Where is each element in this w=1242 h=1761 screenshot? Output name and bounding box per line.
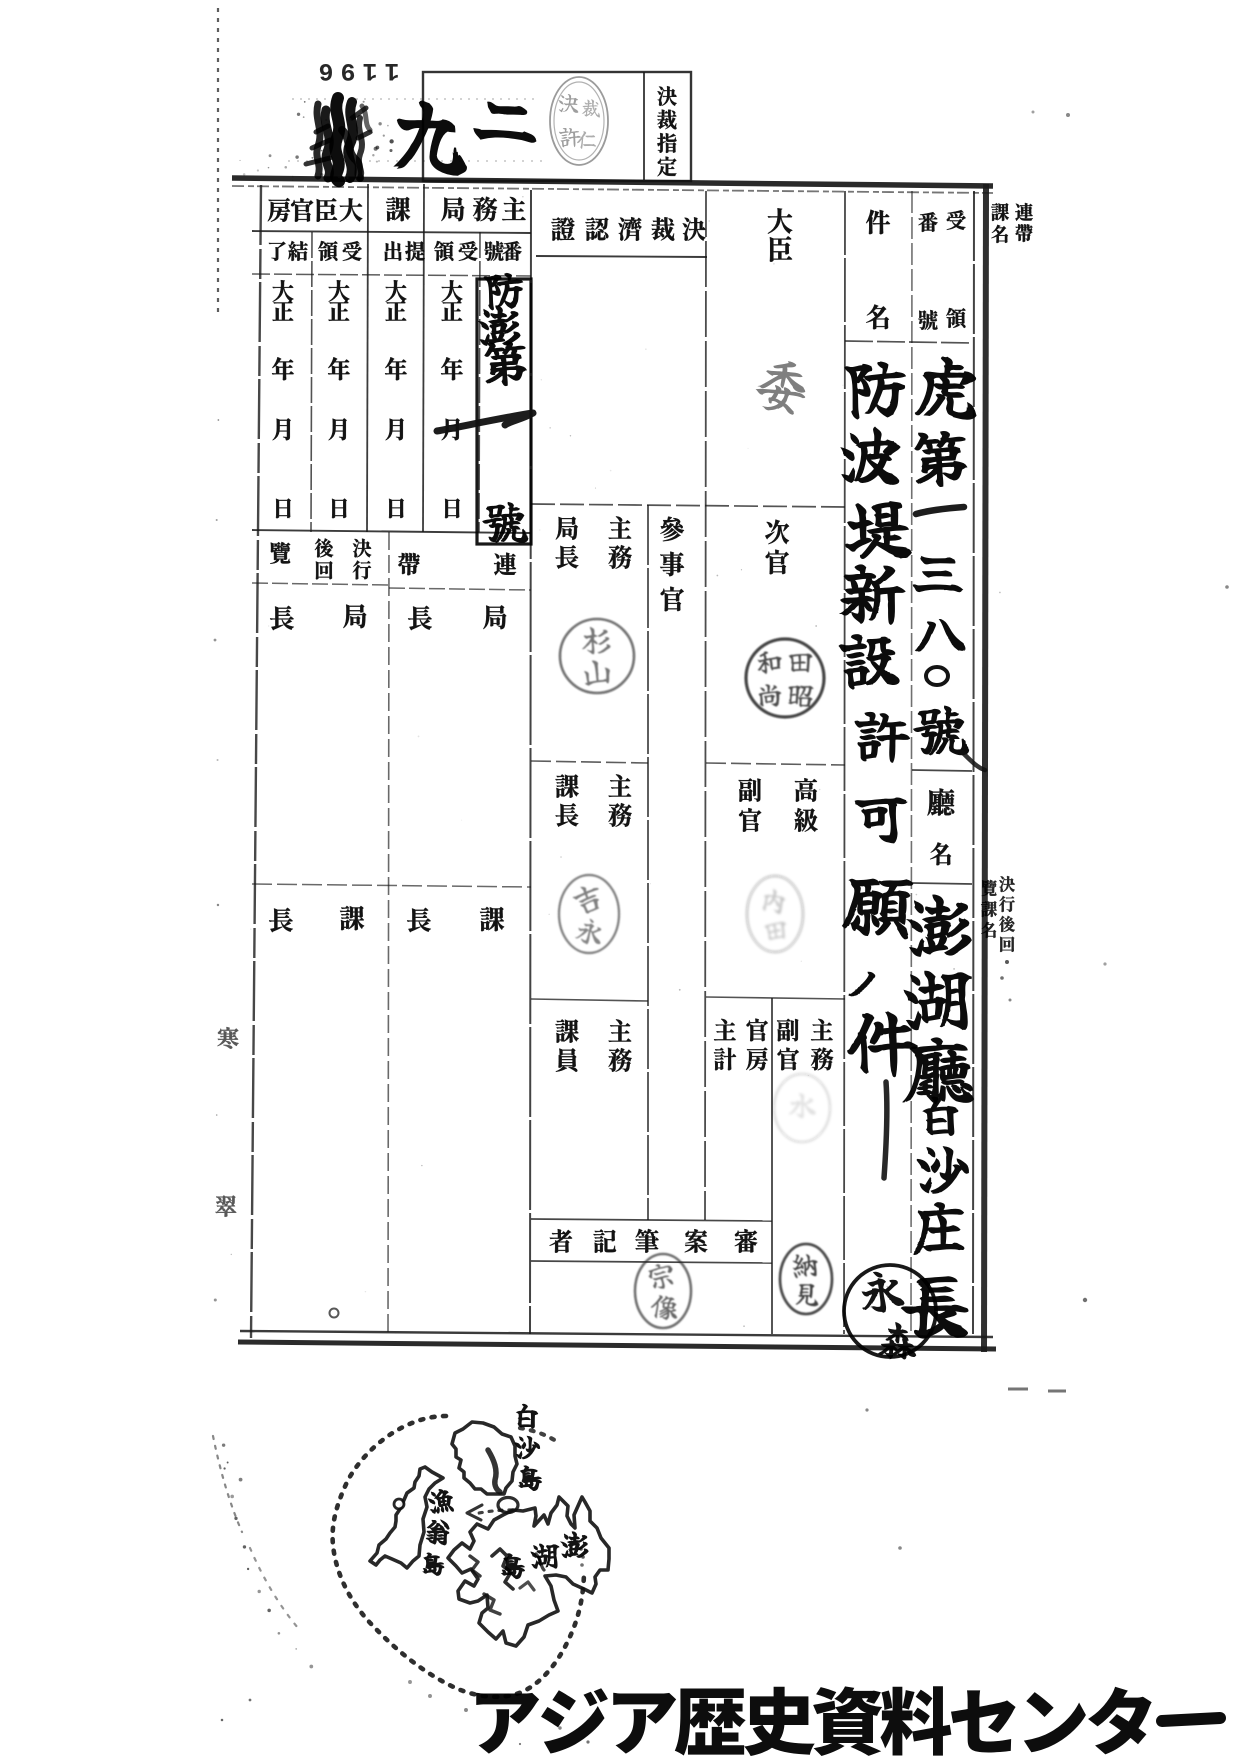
svg-text:1: 1: [362, 56, 377, 85]
svg-text:6: 6: [318, 56, 333, 85]
svg-text:9: 9: [340, 56, 355, 85]
svg-text:1: 1: [384, 56, 399, 85]
